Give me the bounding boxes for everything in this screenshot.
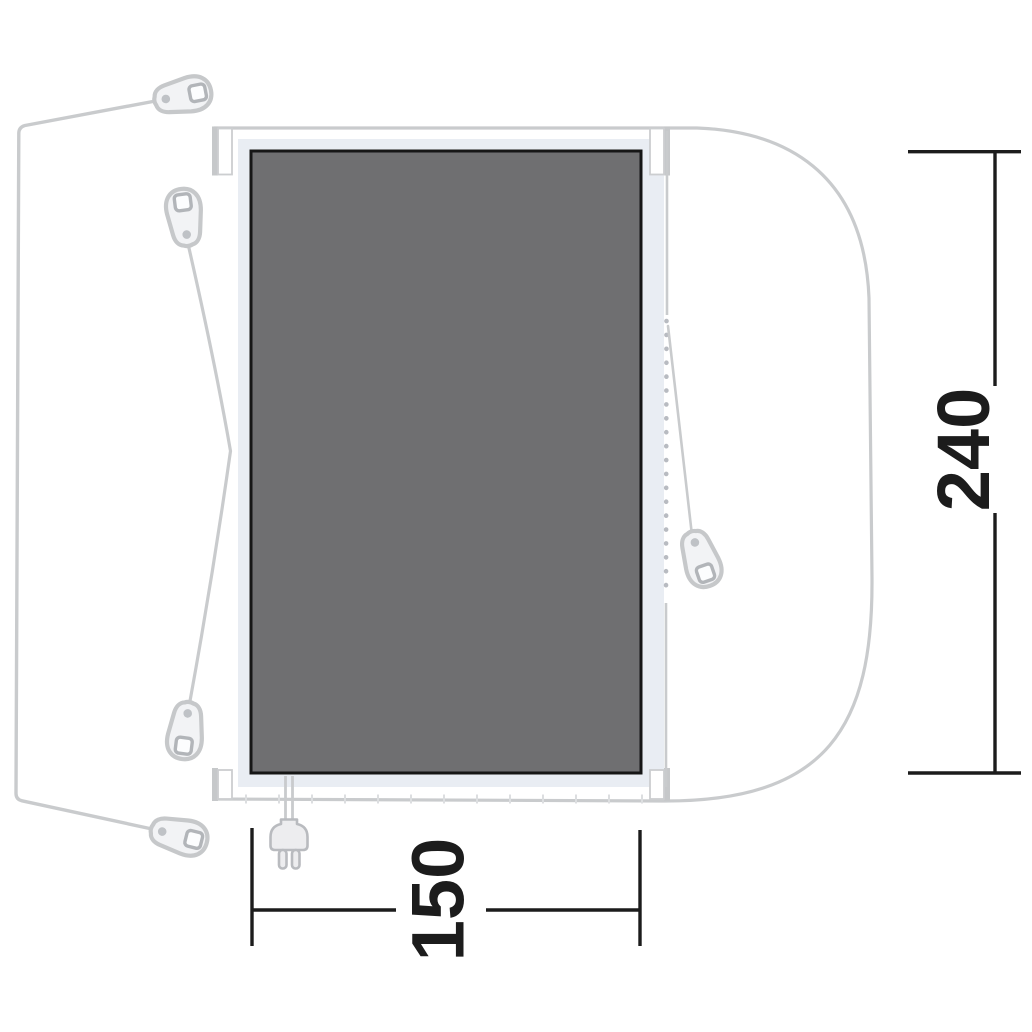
awning-floorplan-diagram: 240 150 [0,0,1032,1032]
dimension-depth-label: 240 [922,388,1005,511]
floor-area [251,151,641,773]
corner-tab-top-left [212,127,232,176]
corner-tab-bottom-left [212,768,232,801]
dimension-width-label: 150 [397,838,480,961]
